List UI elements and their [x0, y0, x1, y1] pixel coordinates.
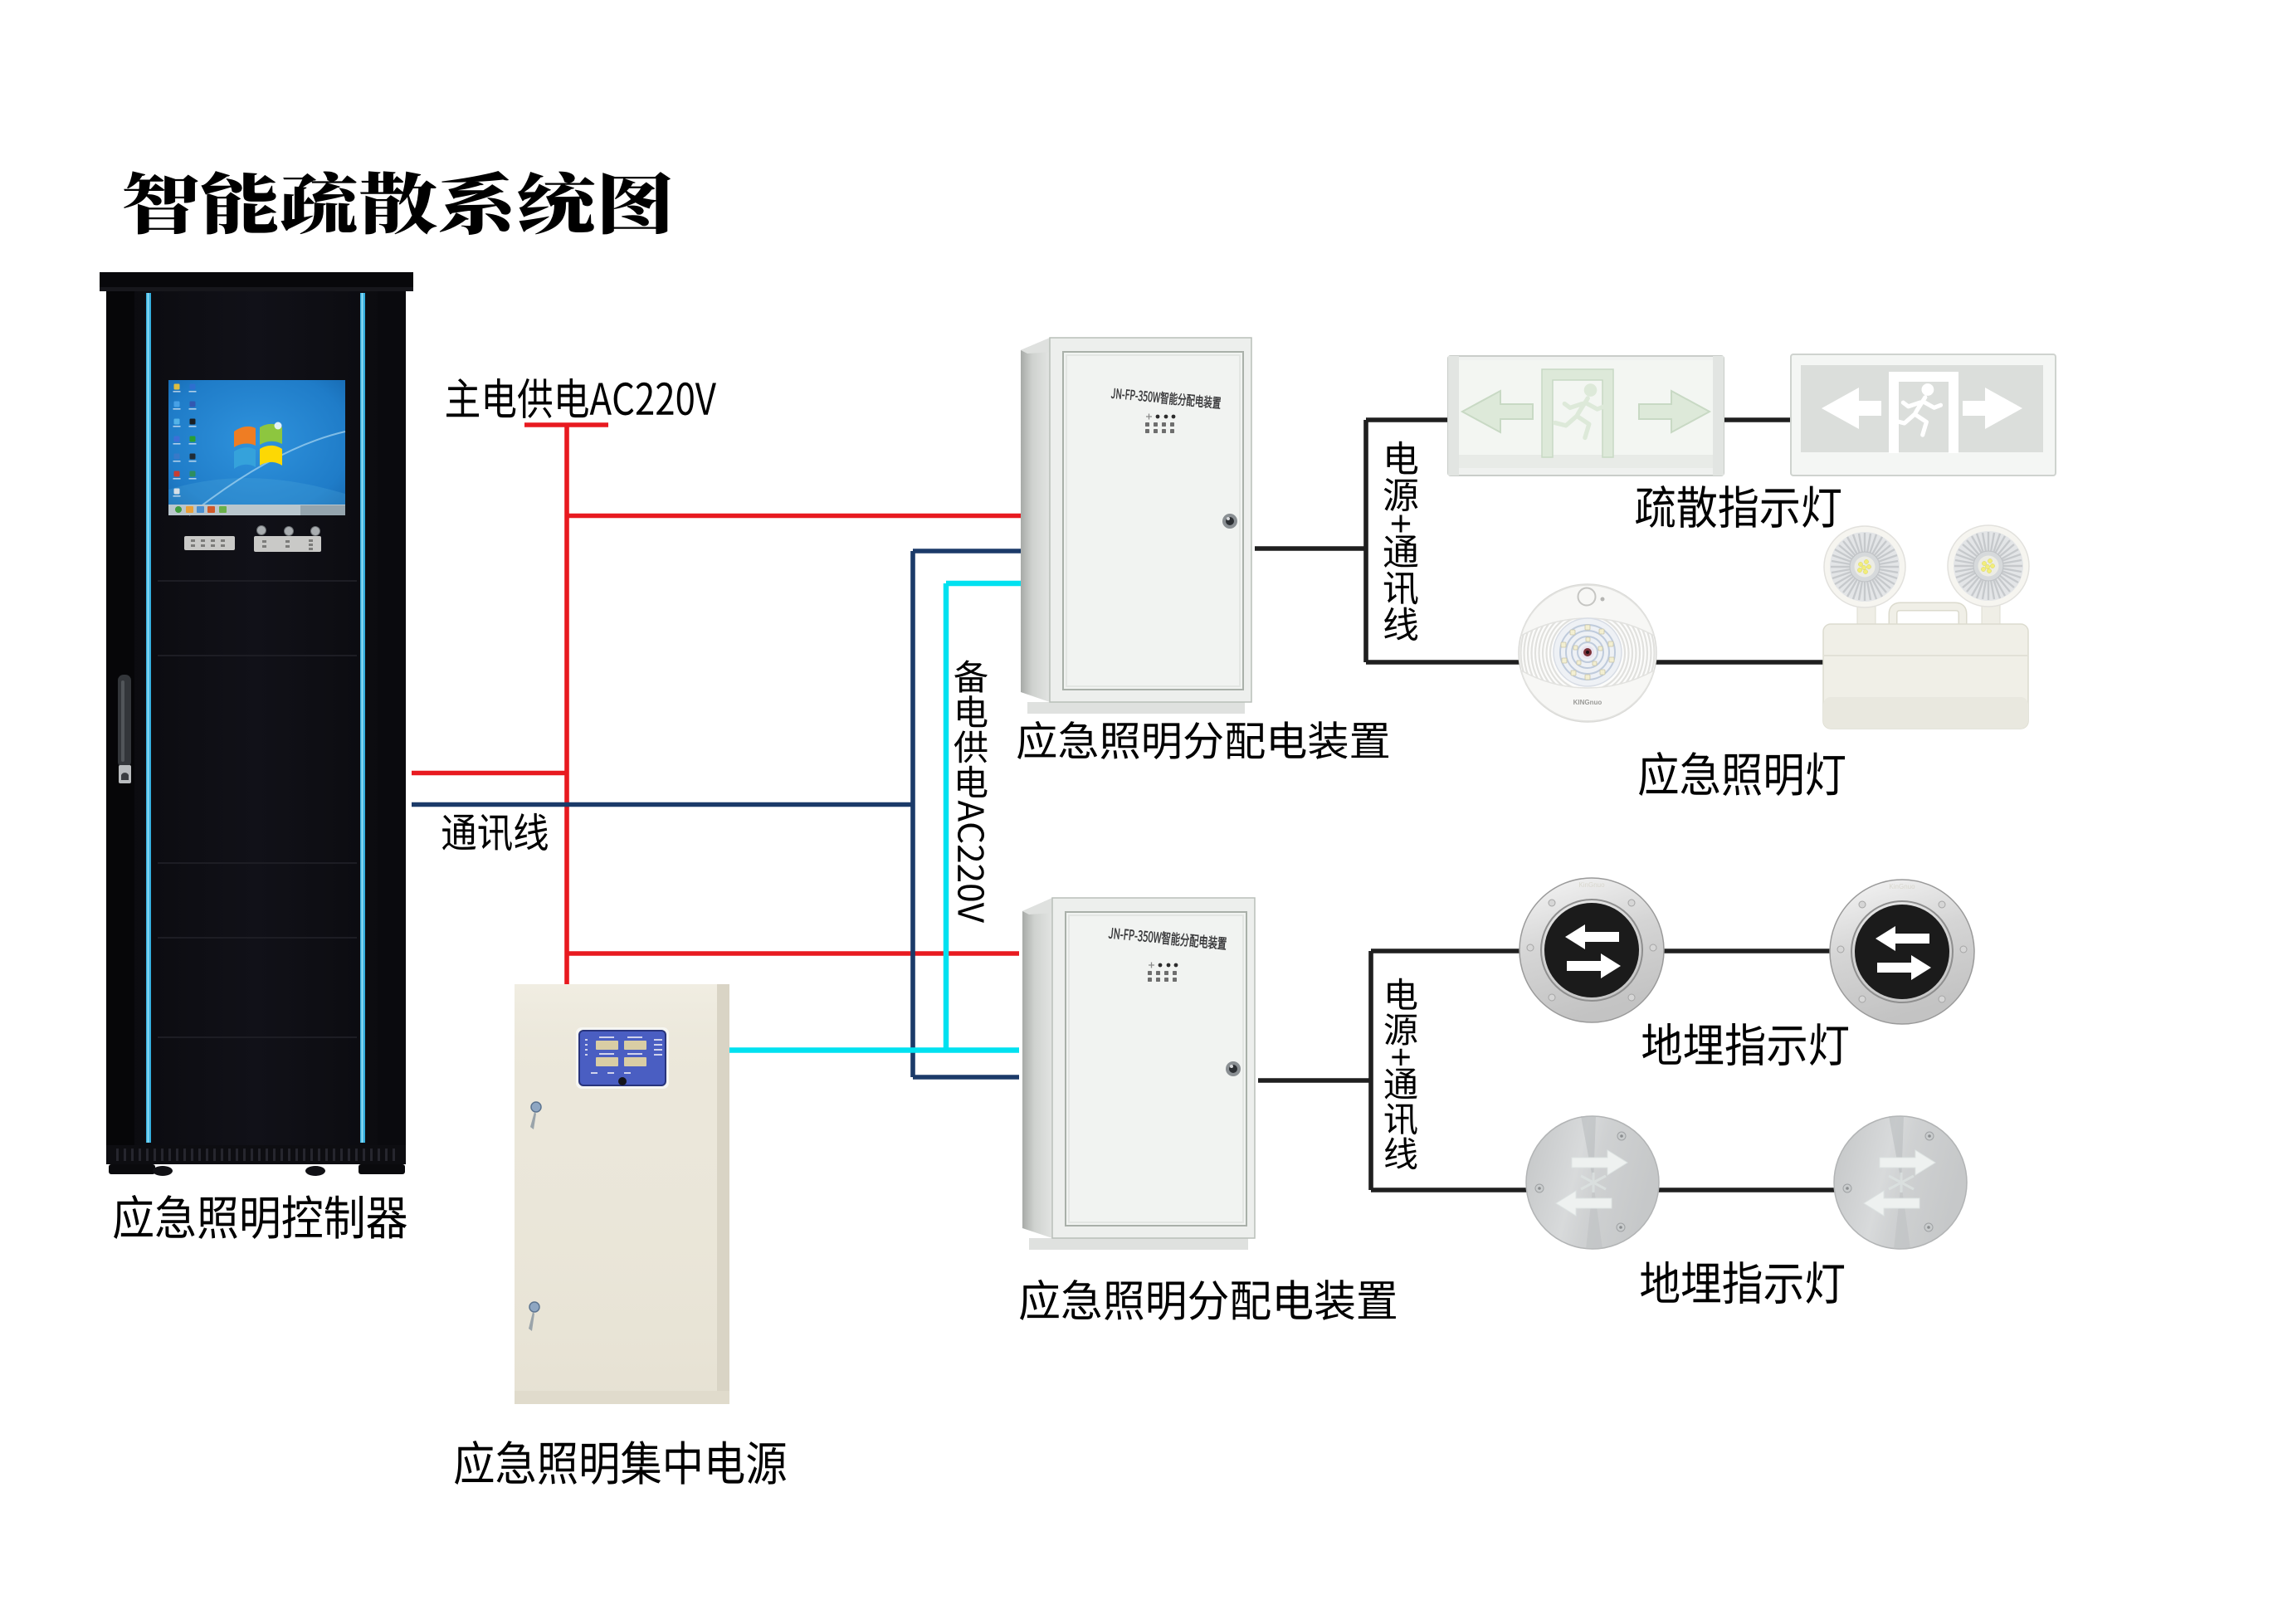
svg-text:KinGnuo: KinGnuo: [1578, 881, 1605, 889]
svg-text:KinGnuo: KinGnuo: [1889, 883, 1915, 890]
svg-text:KINGnuo: KINGnuo: [1573, 699, 1602, 706]
